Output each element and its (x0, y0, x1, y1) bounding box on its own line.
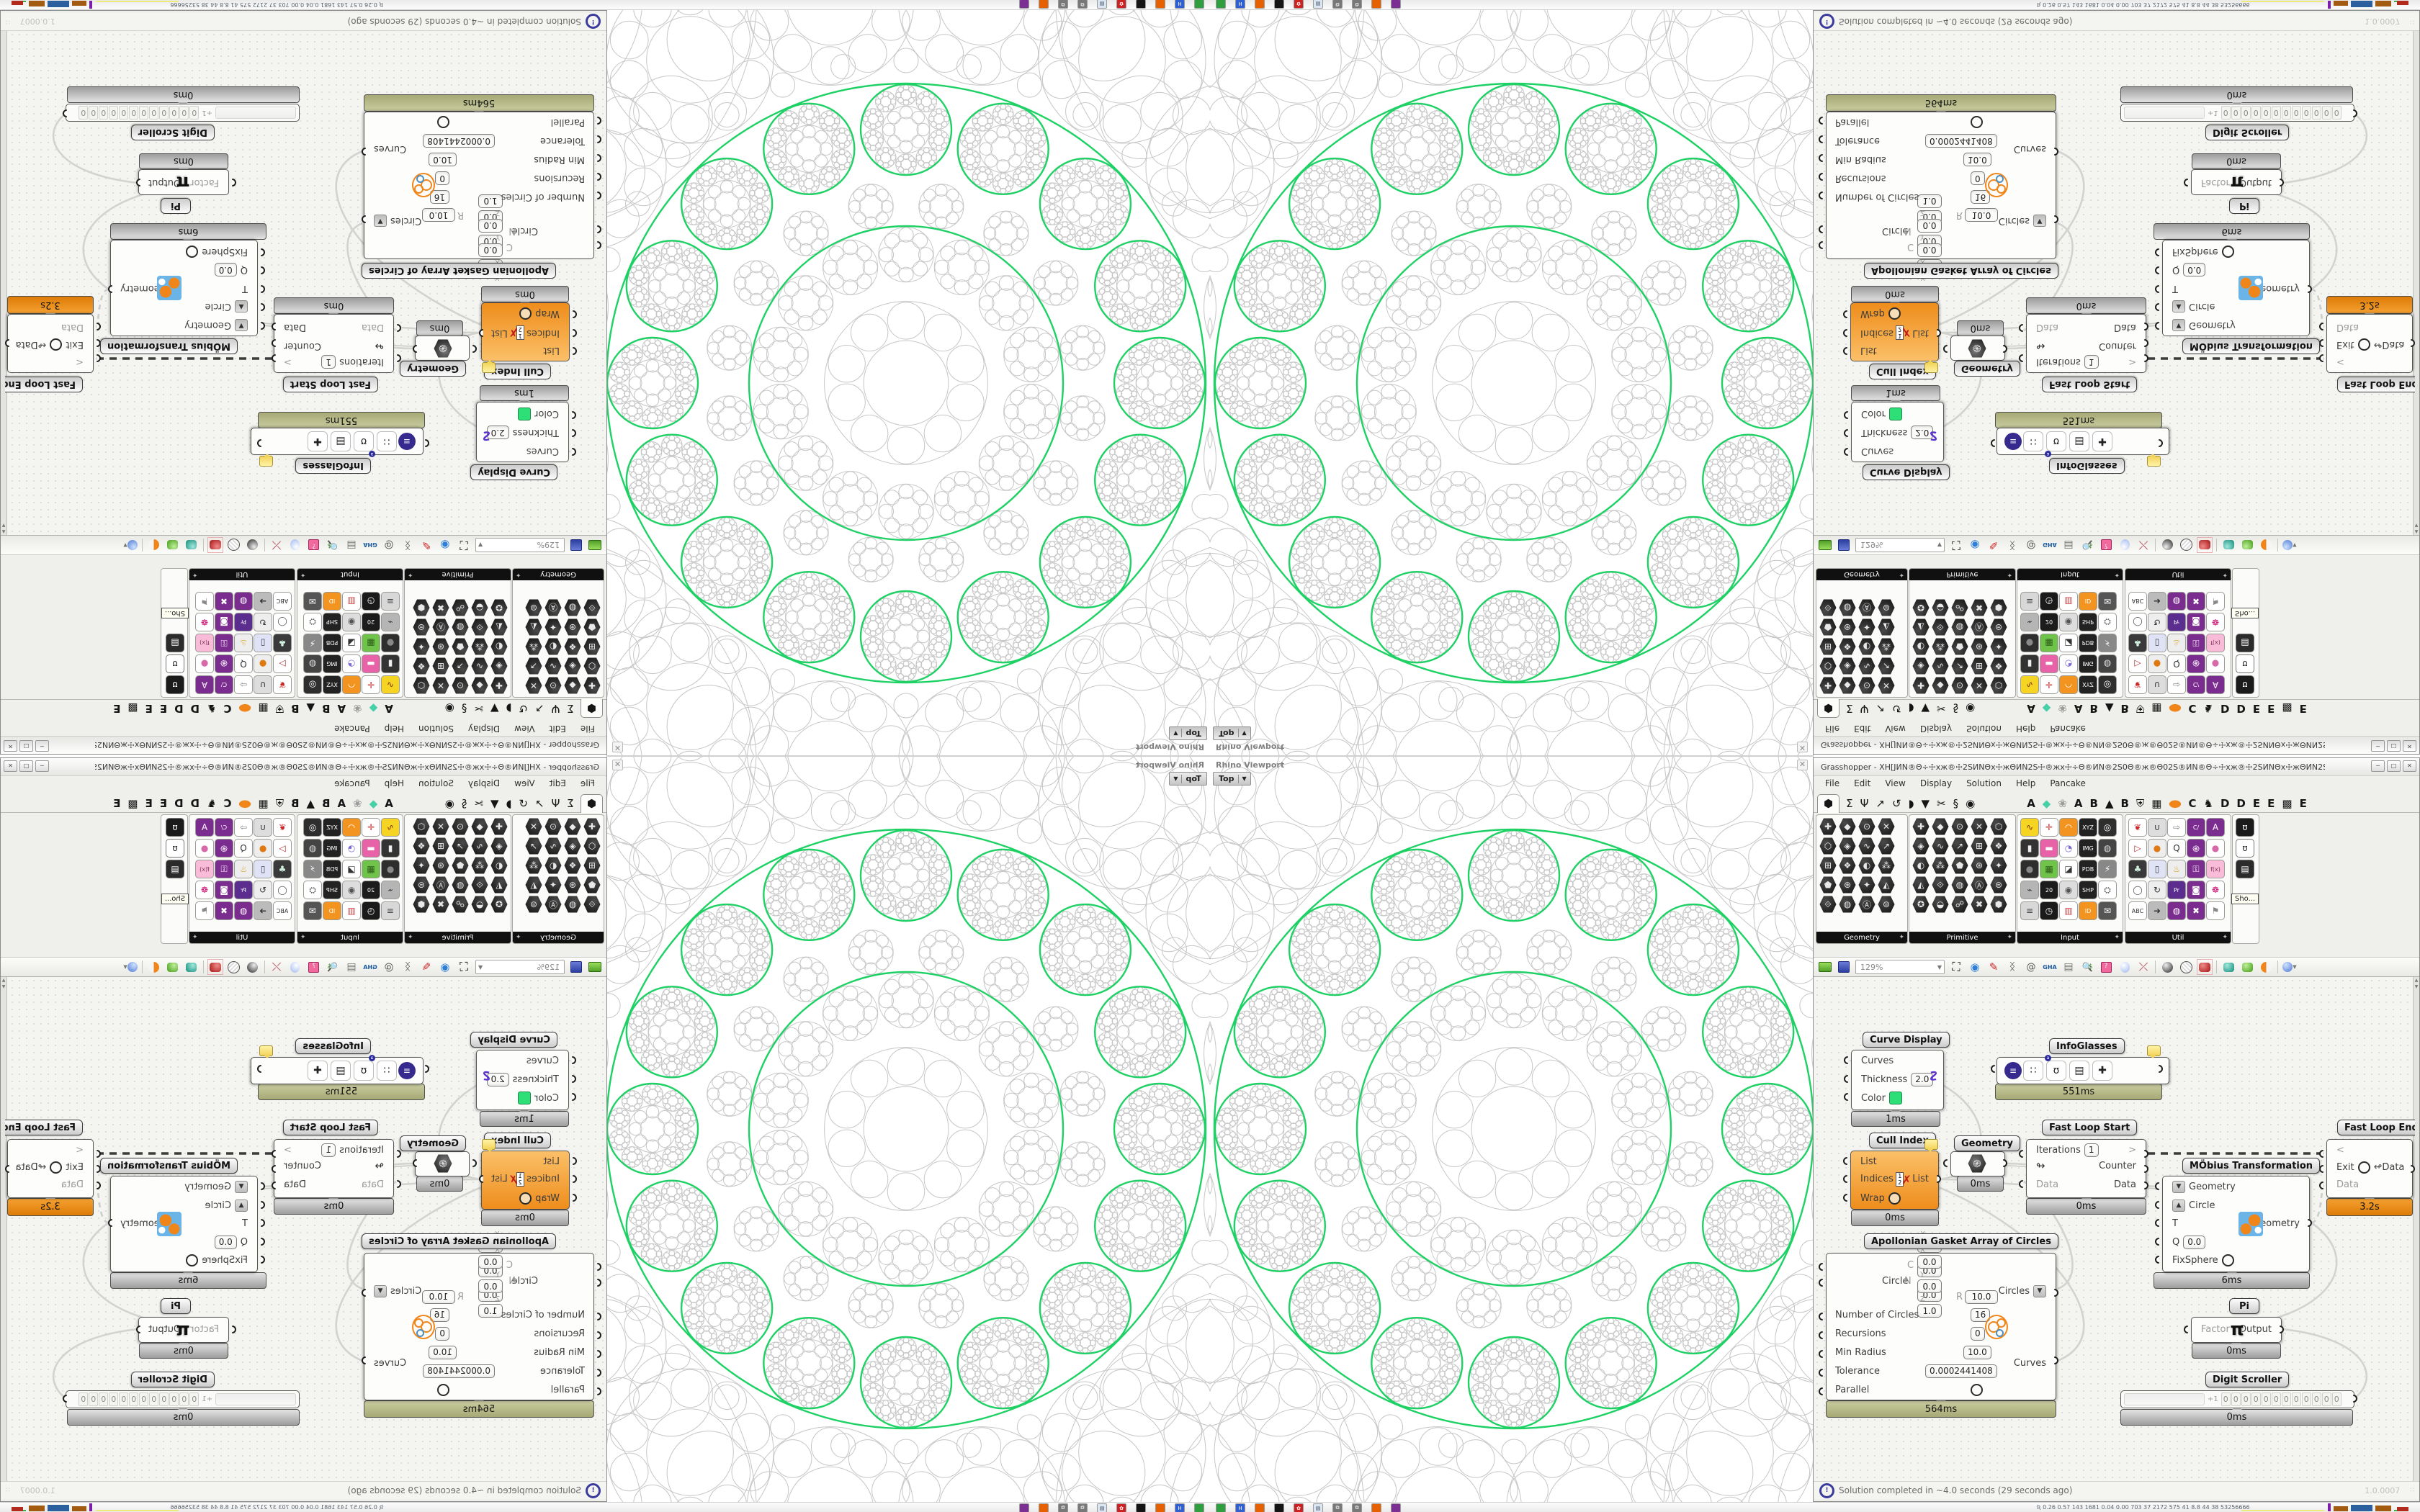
preview-dark-sphere-icon[interactable] (246, 960, 260, 974)
chevron-down-icon[interactable]: ▼ (1240, 730, 1247, 737)
component-icon[interactable]: ⊛ (564, 876, 581, 894)
component-icon[interactable]: ❦ (273, 675, 292, 694)
component-icon[interactable]: ● (2020, 634, 2039, 652)
component-icon[interactable]: Ⓐ (1858, 599, 1875, 616)
taskbar-app-icon[interactable] (1391, 0, 1401, 9)
component-icon[interactable]: ◒ (1932, 896, 1949, 913)
tab-15[interactable]: ▲ (2105, 797, 2114, 810)
viewport-view-tab[interactable]: Top ▼ (1169, 726, 1207, 740)
component-icon[interactable]: PDB (2079, 860, 2097, 878)
component-icon[interactable]: ⛭ (2098, 881, 2117, 899)
menu-view[interactable]: View (1885, 724, 1905, 734)
note-bubble[interactable] (2147, 1045, 2161, 1056)
component-icon[interactable]: ◪ (342, 634, 361, 652)
fast-loop-start-label[interactable]: Fast Loop Start (2042, 377, 2137, 392)
component-icon[interactable]: Ⓐ (544, 896, 562, 913)
menu-edit[interactable]: Edit (550, 724, 566, 734)
component-icon[interactable]: ✦ (413, 638, 430, 655)
component-icon[interactable]: ♣ (273, 860, 292, 878)
tab-27[interactable]: E (113, 702, 120, 715)
component-icon[interactable]: ⁂ (525, 857, 542, 874)
component-icon[interactable]: ◆ (1932, 818, 1949, 835)
taskbar-app-icon[interactable] (1136, 1503, 1146, 1512)
component-icon[interactable]: ֎ (215, 839, 233, 858)
digit-scroller-label[interactable]: Digit Scroller (131, 1372, 215, 1387)
component-icon[interactable]: ◭ (525, 876, 542, 894)
palette-group-label[interactable]: Primitive✦ (405, 569, 511, 580)
taskbar-app-icon[interactable]: ⧉ (1058, 1503, 1068, 1512)
preview-wire-sphere-icon[interactable] (227, 538, 241, 552)
component-icon[interactable]: XYZ (323, 818, 341, 837)
component-icon[interactable]: ☍ (452, 896, 469, 913)
component-icon[interactable]: ⊞ (1971, 837, 1988, 855)
component-icon[interactable]: ✖ (1971, 896, 1988, 913)
digit-cell[interactable]: 0 (129, 1392, 138, 1406)
component-icon[interactable]: ➜ (254, 901, 272, 920)
component-icon[interactable]: ID (2079, 592, 2097, 611)
component-icon[interactable]: ⁂ (1932, 857, 1949, 874)
component-icon[interactable]: 20 (2040, 613, 2058, 631)
tab-0[interactable]: ⬢ (1817, 794, 1839, 813)
bake-green-icon[interactable] (2240, 960, 2254, 974)
component-icon[interactable]: ⚑ (2206, 901, 2225, 920)
component-icon[interactable]: ✉ (2098, 901, 2117, 920)
archive-icon[interactable]: ▤ (2069, 1061, 2089, 1081)
digit-cell[interactable]: 0 (2282, 106, 2291, 120)
taskbar-app-icon[interactable] (1136, 0, 1146, 9)
publish-at-icon[interactable]: @ (2024, 538, 2038, 552)
tab-17[interactable]: ⛨ (276, 702, 284, 715)
palette-group-label[interactable]: Util✦ (2125, 932, 2231, 943)
component-icon[interactable]: ◔ (2059, 654, 2078, 673)
tab-19[interactable]: ⬬ (239, 797, 251, 810)
component-icon[interactable]: ✚ (1819, 818, 1837, 835)
taskbar-app-icon[interactable] (1371, 1503, 1381, 1512)
fast-loop-end-component[interactable]: <Exit ↫DataData (7, 1139, 94, 1198)
component-icon[interactable]: ▥ (342, 901, 361, 920)
preview-shaded-red-icon[interactable] (208, 960, 223, 974)
balloon-icon[interactable] (2117, 960, 2132, 974)
weave-icon[interactable]: ⤫ (269, 960, 284, 974)
component-icon[interactable]: ◈ (490, 657, 508, 675)
component-icon[interactable]: ✪ (1912, 896, 1930, 913)
component-icon[interactable]: ◷ (2040, 901, 2058, 920)
component-icon[interactable]: ∿ (1858, 837, 1875, 855)
component-icon[interactable]: ↻ (2148, 613, 2166, 631)
component-icon[interactable]: ◠ (342, 818, 361, 837)
taskbar-app-icon[interactable] (1216, 0, 1226, 9)
document-icon[interactable]: ▤ (344, 960, 359, 974)
balloon-icon[interactable] (2117, 538, 2132, 552)
tab-21[interactable]: ♞ (207, 702, 216, 715)
component-icon[interactable]: ☸ (2206, 613, 2225, 631)
note-bubble[interactable] (482, 1139, 496, 1150)
palette-group-label[interactable]: Geometry✦ (513, 569, 604, 580)
viewport-close-icon[interactable]: ✕ (612, 760, 623, 770)
tab-2[interactable]: Ψ (552, 797, 560, 810)
component-icon[interactable]: ↗ (1951, 837, 1968, 855)
close-button[interactable]: ✕ (2403, 760, 2416, 772)
digit-cell[interactable]: 0 (2332, 106, 2341, 120)
tab-3[interactable]: ↗ (1875, 702, 1885, 715)
component-icon[interactable]: ◈ (1912, 657, 1930, 675)
component-icon[interactable]: ◆ (471, 677, 488, 694)
palette-group-label[interactable]: Input✦ (297, 932, 403, 943)
menu-edit[interactable]: Edit (550, 778, 566, 788)
component-icon[interactable]: ∿ (381, 675, 400, 694)
zoom-extents-icon[interactable]: ⛶ (457, 538, 471, 552)
tab-4[interactable]: ↺ (1892, 702, 1901, 715)
infoglasses-label[interactable]: InfoGlasses (295, 1038, 371, 1054)
digit-cell[interactable]: 0 (79, 1392, 88, 1406)
tab-1[interactable]: Σ (1846, 702, 1852, 715)
component-icon[interactable]: ◍ (1839, 599, 1856, 616)
tab-4[interactable]: ↺ (519, 797, 528, 810)
component-icon[interactable]: ⚑ (195, 592, 214, 611)
component-icon[interactable]: ≡ (381, 592, 400, 611)
component-icon[interactable]: ◉ (2059, 881, 2078, 899)
component-icon[interactable]: ◙ (215, 881, 233, 899)
tab-9[interactable]: ◉ (1966, 702, 1975, 715)
tab-25[interactable]: E (2267, 702, 2275, 715)
mobius-transformation-label[interactable]: MÖbius Transformation (100, 338, 238, 354)
component-icon[interactable]: ⊛ (564, 618, 581, 636)
component-icon[interactable]: ∿ (1932, 657, 1949, 675)
zoom-extents-icon[interactable]: ⛶ (1949, 538, 1963, 552)
component-icon[interactable]: PDB (323, 860, 341, 878)
taskbar-app-icon[interactable]: H (1235, 1503, 1245, 1512)
component-icon[interactable]: ▬ (2040, 654, 2058, 673)
component-icon[interactable]: ⊜ (525, 896, 542, 913)
component-icon[interactable]: ✚ (583, 818, 601, 835)
component-icon[interactable]: ⟐ (1819, 599, 1837, 616)
infoglasses-disc-icon[interactable]: ≡ (2004, 1062, 2022, 1079)
tab-22[interactable]: D (2220, 797, 2229, 810)
preview-wire-sphere-icon[interactable] (227, 960, 241, 974)
component-icon[interactable]: ⊜ (413, 876, 430, 894)
cull-index-component[interactable]: ListIndicesListWrap 12✗ (481, 302, 570, 361)
component-icon[interactable]: ◒ (471, 599, 488, 616)
component-icon[interactable]: A (2206, 675, 2225, 694)
component-icon[interactable]: ⬟ (1951, 638, 1968, 655)
component-icon[interactable]: ⌁ (381, 613, 400, 631)
component-icon[interactable]: ◯ (273, 881, 292, 899)
component-icon[interactable]: ⊛ (1971, 857, 1988, 874)
component-icon[interactable]: ◍ (1839, 896, 1856, 913)
taskbar-app-icon[interactable]: ✿ (1294, 0, 1304, 9)
component-icon[interactable]: ⟐ (471, 876, 488, 894)
component-icon[interactable]: ● (381, 634, 400, 652)
component-icon[interactable]: ◭ (490, 876, 508, 894)
component-icon[interactable]: ◔ (342, 839, 361, 858)
component-icon[interactable]: ⊞ (583, 857, 601, 874)
component-icon[interactable]: ◭ (525, 618, 542, 636)
zoom-extents-icon[interactable]: ⛶ (1949, 960, 1963, 974)
digit-cell[interactable]: 0 (159, 106, 169, 120)
tab-25[interactable]: E (2267, 797, 2275, 810)
component-icon[interactable]: ABC (273, 901, 292, 920)
archive-icon[interactable]: ▤ (331, 431, 351, 451)
component-icon[interactable]: ◍ (1951, 618, 1968, 636)
component-icon[interactable]: ◒ (471, 896, 488, 913)
infoglasses-label[interactable]: InfoGlasses (2049, 1038, 2125, 1054)
component-icon[interactable]: ⊜ (1878, 599, 1895, 616)
mystery-box-icon[interactable]: ? (307, 538, 321, 552)
component-icon[interactable]: ✕ (1878, 677, 1895, 694)
tab-3[interactable]: ↗ (535, 702, 544, 715)
component-icon[interactable]: ✖ (432, 599, 449, 616)
component-icon[interactable]: ✕ (1971, 677, 1988, 694)
puzzle-icon[interactable]: ✚ (308, 1061, 328, 1081)
digit-cell[interactable]: 0 (2302, 106, 2311, 120)
menu-file[interactable]: File (1825, 724, 1839, 734)
palette-group-label[interactable]: Util✦ (2125, 569, 2231, 580)
close-button[interactable]: ✕ (4, 760, 17, 772)
digit-cell[interactable]: 0 (2322, 106, 2331, 120)
tab-10[interactable]: A (2027, 797, 2035, 810)
taskbar-app-icon[interactable]: ▤ (1097, 0, 1107, 9)
component-icon[interactable]: ∪ (254, 675, 272, 694)
component-icon[interactable]: ◍ (2167, 901, 2186, 920)
digit-cell[interactable]: 0 (99, 1392, 108, 1406)
component-icon[interactable]: ◍ (303, 839, 322, 858)
blue-sphere-icon[interactable]: ▼ (123, 960, 138, 974)
fast-loop-end-label[interactable]: Fast Loop End (5, 1120, 83, 1135)
viewport-close-icon[interactable]: ✕ (1797, 760, 1808, 770)
tab-24[interactable]: E (2253, 797, 2260, 810)
component-icon[interactable]: ▬ (362, 654, 380, 673)
menu-edit[interactable]: Edit (1854, 778, 1870, 788)
insect-icon[interactable]: ᛝ (2005, 538, 2020, 552)
component-icon[interactable]: ◪ (2059, 860, 2078, 878)
tab-27[interactable]: E (113, 797, 120, 810)
component-icon[interactable]: ⟐ (583, 896, 601, 913)
half-orange-sphere-icon[interactable] (2259, 960, 2273, 974)
tab-9[interactable]: ◉ (445, 702, 454, 715)
component-icon[interactable]: ID (323, 901, 341, 920)
component-icon[interactable]: Q (234, 839, 253, 858)
tab-20[interactable]: C (223, 797, 231, 810)
menu-solution[interactable]: Solution (1966, 724, 2002, 734)
component-icon[interactable]: ⊙ (1858, 677, 1875, 694)
component-icon[interactable]: ● (195, 654, 214, 673)
tab-6[interactable]: ▼ (1921, 702, 1930, 715)
taskbar-app-icon[interactable]: ⧉ (1058, 0, 1068, 9)
component-icon[interactable]: ⬡ (1819, 657, 1837, 675)
maximize-button[interactable]: □ (19, 760, 33, 772)
digit-scroller-component[interactable]: +1000000000000 (2120, 1390, 2354, 1408)
component-icon[interactable]: ✚ (1912, 677, 1930, 694)
component-icon[interactable]: ◭ (1878, 618, 1895, 636)
half-orange-sphere-icon[interactable] (147, 960, 161, 974)
component-icon[interactable]: ❖ (413, 657, 430, 675)
component-icon[interactable]: ◍ (234, 901, 253, 920)
tab-7[interactable]: ✂ (1937, 702, 1946, 715)
archive-icon[interactable]: ▤ (331, 1061, 351, 1081)
pi-label[interactable]: Pi (161, 198, 191, 214)
component-icon[interactable]: ❖ (564, 857, 581, 874)
tab-0[interactable]: ⬢ (581, 794, 603, 813)
tab-15[interactable]: ▲ (306, 797, 315, 810)
tab-23[interactable]: D (174, 797, 183, 810)
infoglasses-component[interactable]: ≡∷ʊ▤✚a (251, 428, 423, 455)
component-icon[interactable]: ◎ (2098, 675, 2117, 694)
component-icon[interactable]: ✚ (583, 677, 601, 694)
component-icon[interactable]: ✛ (362, 675, 380, 694)
goggles-icon[interactable]: ʊ (2046, 431, 2066, 451)
component-icon[interactable]: ▦ (2040, 634, 2058, 652)
component-icon[interactable]: ◠ (2059, 675, 2078, 694)
geometry-label[interactable]: Geometry (1954, 361, 2020, 377)
component-icon[interactable]: ⊙ (544, 677, 562, 694)
gha-badge-icon[interactable]: GHA (363, 538, 377, 552)
component-icon[interactable]: ▥ (2059, 901, 2078, 920)
taskbar-app-icon[interactable]: ⧉ (1352, 1503, 1362, 1512)
menu-solution[interactable]: Solution (1966, 778, 2002, 788)
grasshopper-titlebar[interactable]: Grasshopper - XH[JИN®Θ÷☩xж®☩2SИNΘx☩жΘИN2… (1814, 736, 2419, 754)
document-icon[interactable]: ▤ (2061, 538, 2076, 552)
component-icon[interactable]: ⁂ (1878, 638, 1895, 655)
component-icon[interactable]: f(x) (195, 860, 214, 878)
component-icon[interactable]: ⬡ (413, 677, 430, 694)
fast-loop-start-component[interactable]: Iterations 1>↬CounterDataData (274, 314, 394, 373)
digit-cell[interactable]: 0 (79, 106, 88, 120)
fast-loop-end-label[interactable]: Fast Loop End (5, 377, 83, 392)
component-icon[interactable]: ◐ (1912, 638, 1930, 655)
component-icon[interactable]: ◆ (1839, 677, 1856, 694)
component-icon[interactable]: A (2206, 818, 2225, 837)
pi-label[interactable]: Pi (2229, 198, 2259, 214)
component-icon[interactable]: ⚿ (2187, 634, 2205, 652)
component-icon[interactable]: ◎ (2098, 818, 2117, 837)
tab-11[interactable]: ◆ (2043, 797, 2051, 810)
viewport-view-tab[interactable]: Top ▼ (1213, 772, 1251, 786)
mobius-component[interactable]: ▼ Geometry▲ CircleTGeometryQ 0.0FixSpher… (2162, 1176, 2310, 1272)
goggles-icon[interactable]: ʊ (354, 1061, 374, 1081)
balloon-icon[interactable] (288, 960, 302, 974)
half-orange-sphere-icon[interactable] (147, 538, 161, 552)
component-icon[interactable]: ⬟ (1951, 857, 1968, 874)
insect-icon[interactable]: ᛝ (400, 538, 415, 552)
component-icon[interactable]: C/ (215, 675, 233, 694)
tab-20[interactable]: C (2189, 797, 2197, 810)
component-icon[interactable]: ◆ (471, 818, 488, 835)
component-icon[interactable]: ✚ (490, 818, 508, 835)
viewport-close-icon[interactable]: ✕ (1797, 742, 1808, 752)
component-icon[interactable]: f(x) (2206, 860, 2225, 878)
component-icon[interactable]: ABC (2128, 901, 2147, 920)
component-icon[interactable]: ʊ (166, 818, 184, 837)
component-icon[interactable]: ✖ (215, 592, 233, 611)
zoom-level-select[interactable]: 129%▼ (1855, 538, 1945, 552)
taskbar-app-icon[interactable] (1019, 1503, 1029, 1512)
save-file-icon[interactable] (1837, 960, 1851, 974)
note-bubble[interactable] (259, 1045, 273, 1056)
digit-cell[interactable]: 0 (169, 1392, 179, 1406)
taskbar-app-icon[interactable]: ⧉ (1077, 1503, 1088, 1512)
fast-loop-start-label[interactable]: Fast Loop Start (2042, 1120, 2137, 1135)
component-icon[interactable]: ➜ (2148, 901, 2166, 920)
open-file-icon[interactable] (588, 538, 602, 552)
digit-cell[interactable]: 0 (2241, 106, 2251, 120)
tab-8[interactable]: § (1953, 797, 1959, 810)
rhino-viewport[interactable]: Rhino Viewport Top ▼ ✕ (606, 9, 1210, 756)
tab-23[interactable]: D (2236, 797, 2245, 810)
component-icon[interactable]: ◐ (490, 857, 508, 874)
tab-16[interactable]: B (291, 797, 299, 810)
component-icon[interactable]: ◭ (490, 618, 508, 636)
tab-13[interactable]: A (2074, 797, 2083, 810)
menu-pancake[interactable]: Pancake (2050, 724, 2086, 734)
component-icon[interactable]: ⊞ (1819, 857, 1837, 874)
mobius-transformation-label[interactable]: MÖbius Transformation (2182, 1158, 2320, 1174)
bake-teal-icon[interactable] (184, 538, 199, 552)
menu-view[interactable]: View (1885, 778, 1905, 788)
component-icon[interactable]: ▮ (2020, 654, 2039, 673)
component-icon[interactable]: PDB (2079, 634, 2097, 652)
component-icon[interactable]: ▮ (381, 654, 400, 673)
cull-index-component[interactable]: ListIndicesListWrap 12✗ (1850, 302, 1939, 361)
document-icon[interactable]: ▤ (2061, 960, 2076, 974)
component-icon[interactable]: ✕ (525, 818, 542, 835)
digit-cell[interactable]: 0 (2241, 1392, 2251, 1406)
component-icon[interactable]: ⇨ (234, 818, 253, 837)
tab-8[interactable]: § (462, 797, 467, 810)
tab-15[interactable]: ▲ (2105, 702, 2114, 715)
digit-cell[interactable]: 0 (2221, 106, 2231, 120)
component-icon[interactable]: ↗ (525, 837, 542, 855)
component-icon[interactable]: ♨ (234, 634, 253, 652)
apollonian-gasket-label[interactable]: Apollonian Gasket Array of Circles (362, 263, 556, 279)
component-icon[interactable]: ☸ (195, 613, 214, 631)
digit-cell[interactable]: 0 (2262, 1392, 2271, 1406)
digit-cell[interactable]: 0 (2332, 1392, 2341, 1406)
menu-display[interactable]: Display (468, 724, 500, 734)
component-icon[interactable]: ◆ (1839, 818, 1856, 835)
bake-teal-icon[interactable] (184, 960, 199, 974)
bake-teal-icon[interactable] (2221, 960, 2236, 974)
component-icon[interactable]: ⁂ (1878, 857, 1895, 874)
canvas[interactable]: Curve DisplayCurvesThickness 2.0Color ∿1… (1814, 977, 2415, 1481)
infoglasses-component[interactable]: ≡∷ʊ▤✚a (251, 1057, 423, 1084)
component-icon[interactable]: A (195, 818, 214, 837)
tab-3[interactable]: ↗ (1875, 797, 1885, 810)
minimize-button[interactable]: ─ (2371, 760, 2385, 772)
tab-24[interactable]: E (160, 797, 167, 810)
component-icon[interactable]: ⊛ (432, 857, 449, 874)
close-button[interactable]: ✕ (4, 740, 17, 752)
tab-20[interactable]: C (2189, 702, 2197, 715)
scroller-increment[interactable]: +1 (2205, 109, 2221, 117)
tab-21[interactable]: ♞ (2204, 797, 2213, 810)
component-icon[interactable]: ⬢ (1990, 896, 2007, 913)
digit-scroller-component[interactable]: +1000000000000 (2120, 104, 2354, 122)
note-bubble[interactable] (2147, 456, 2161, 467)
infoglasses-disc-icon[interactable]: ≡ (398, 1062, 416, 1079)
minimize-button[interactable]: ─ (2371, 740, 2385, 752)
tab-18[interactable]: ▦ (2151, 797, 2161, 810)
component-icon[interactable]: ◯ (2128, 613, 2147, 631)
mystery-box-icon[interactable]: ? (2099, 960, 2113, 974)
component-icon[interactable]: ◎ (303, 675, 322, 694)
component-icon[interactable]: Ⓐ (544, 599, 562, 616)
component-icon[interactable]: ⬡ (583, 657, 601, 675)
finance-search-icon[interactable]: 🔍$ (2080, 538, 2094, 552)
component-icon[interactable]: PDB (323, 634, 341, 652)
component-icon[interactable]: ⬢ (413, 896, 430, 913)
component-icon[interactable]: Ⓐ (1971, 618, 1988, 636)
tab-26[interactable]: ▩ (127, 797, 138, 810)
